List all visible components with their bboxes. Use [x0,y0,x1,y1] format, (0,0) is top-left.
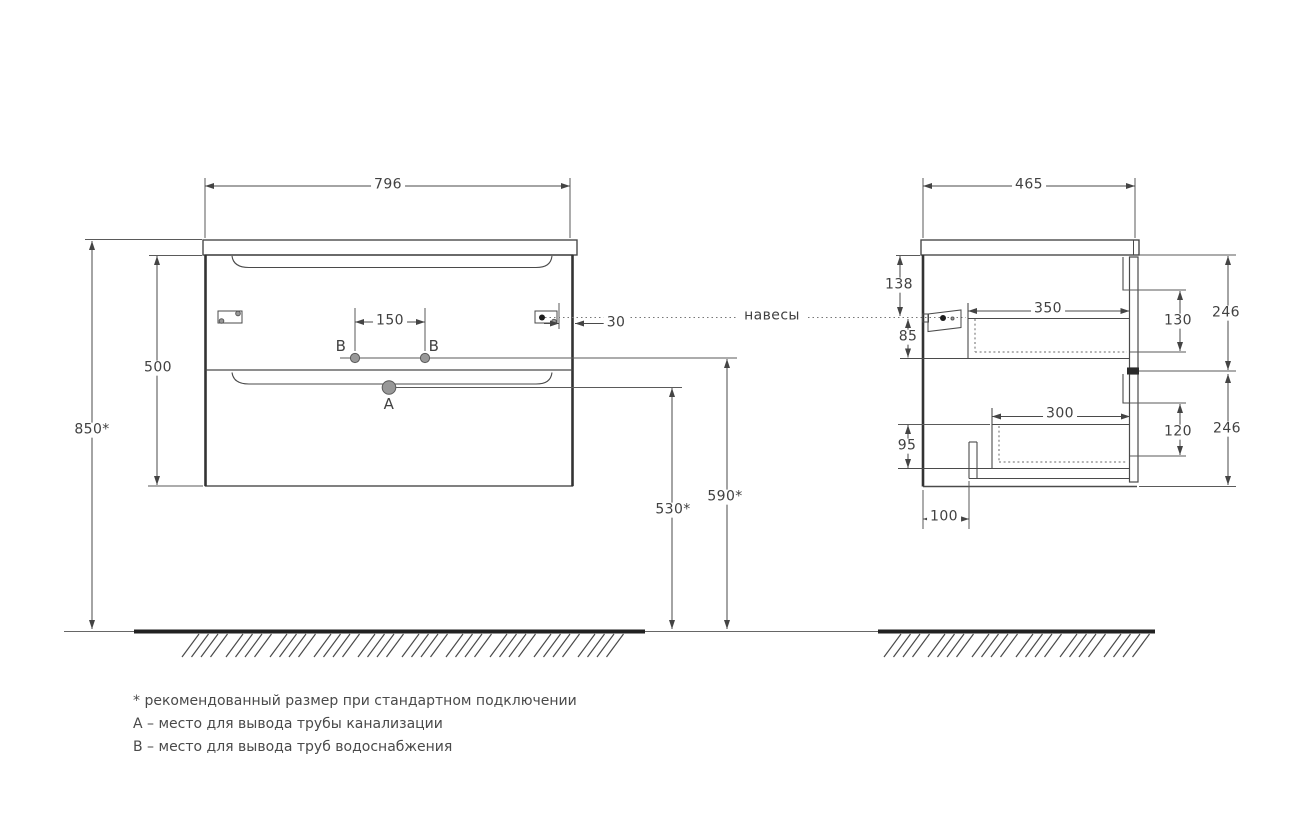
footnotes: * рекомендованный размер при стандартном… [133,694,577,763]
dim-label-upper-front-height: 246 [1209,306,1243,321]
dim-label-hanger-offset: 30 [604,316,629,331]
vanity-dimension-drawing: 796 850* 500 150 30 590* 530* A B B наве… [0,0,1300,836]
floor-hatching-front [182,634,624,657]
side-dimensions [896,178,1236,529]
hangers-callout: навесы [741,309,803,324]
dim-label-front-width: 796 [371,178,405,193]
hole-b-left-label: B [336,339,347,355]
hole-a-label: A [384,397,395,413]
lower-drawer-box [898,408,1130,469]
hole-a [382,381,396,395]
countertop-side [921,240,1139,255]
hole-b-left [350,353,359,362]
handle-groove-upper [232,256,552,268]
dim-label-upper-drawer-depth: 350 [1031,302,1065,317]
dim-label-drain-height: 530* [652,503,693,518]
dim-label-bottom-offset: 95 [895,439,920,454]
footnote-recommended-size: * рекомендованный размер при стандартном… [133,694,577,708]
dim-label-holes-spacing: 150 [373,314,407,329]
floor-hatching-side [884,634,1150,657]
drain-pipe-channel [969,442,1130,479]
drawer-front-seam [1127,368,1139,375]
footnote-supply-location: В – место для вывода труб водоснабжения [133,740,577,754]
front-dimensions [85,178,966,629]
hanger-plate-left [218,311,242,323]
hole-b-right-label: B [429,339,440,355]
drawer-front-upper [1130,257,1139,368]
drawer-front-lower [1130,374,1139,482]
floor [64,632,1155,658]
dim-label-lower-drawer-inner-height: 120 [1161,425,1195,440]
front-view [203,240,737,486]
countertop-front [203,240,577,255]
dim-label-back-offset: 100 [927,510,961,525]
dim-label-lower-drawer-depth: 300 [1043,407,1077,422]
dim-label-depth: 465 [1012,178,1046,193]
footnote-drain-location: А – место для вывода трубы канализации [133,717,577,731]
dim-label-hanger-drop: 85 [896,330,921,345]
side-view [898,240,1139,487]
dim-label-mount-height: 850* [71,423,112,438]
dim-label-supply-height: 590* [704,490,745,505]
dim-label-front-height: 500 [141,361,175,376]
dim-label-upper-drawer-inner-height: 130 [1161,314,1195,329]
wall-hanger-bracket [923,310,962,332]
dim-label-lower-front-height: 246 [1210,422,1244,437]
dim-label-top-offset: 138 [882,278,916,293]
